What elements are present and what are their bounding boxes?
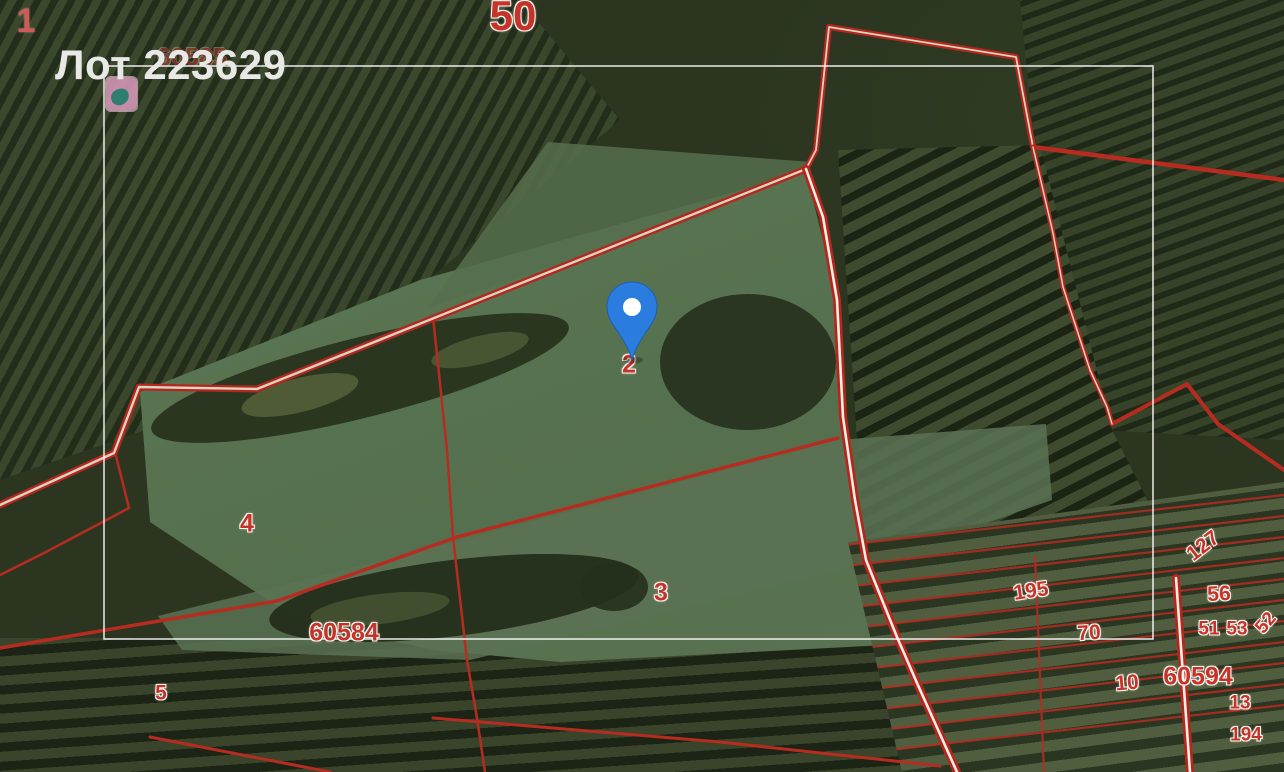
map-canvas[interactable]: 1 50 60585 4 5 60584 2 3 195 70 127 56 5… [0,0,1284,772]
plot-label-13: 13 [1229,694,1250,713]
plot-label-10: 10 [1114,672,1139,695]
minor-boundaries [0,147,1284,772]
block-label-60594: 60594 [1163,665,1233,690]
page-title: Лот 223629 [55,44,286,86]
plot-label-53: 53 [1226,620,1247,639]
map-pin-icon[interactable] [602,280,662,366]
block-label-60584: 60584 [309,621,379,646]
plot-label-56: 56 [1207,583,1231,605]
parcel-label-4: 4 [240,512,254,537]
cadastral-lines-overlay [0,0,1284,772]
parcel-label-1: 1 [17,4,36,38]
plot-label-194: 194 [1230,726,1262,745]
parcel-label-3: 3 [654,581,668,606]
plot-label-195: 195 [1012,578,1050,604]
plot-label-51: 51 [1198,620,1219,639]
main-parcel-boundary [0,27,1112,505]
quarter-label-50: 50 [490,0,537,37]
parcel-label-5: 5 [155,683,167,704]
plot-label-70: 70 [1077,622,1102,645]
